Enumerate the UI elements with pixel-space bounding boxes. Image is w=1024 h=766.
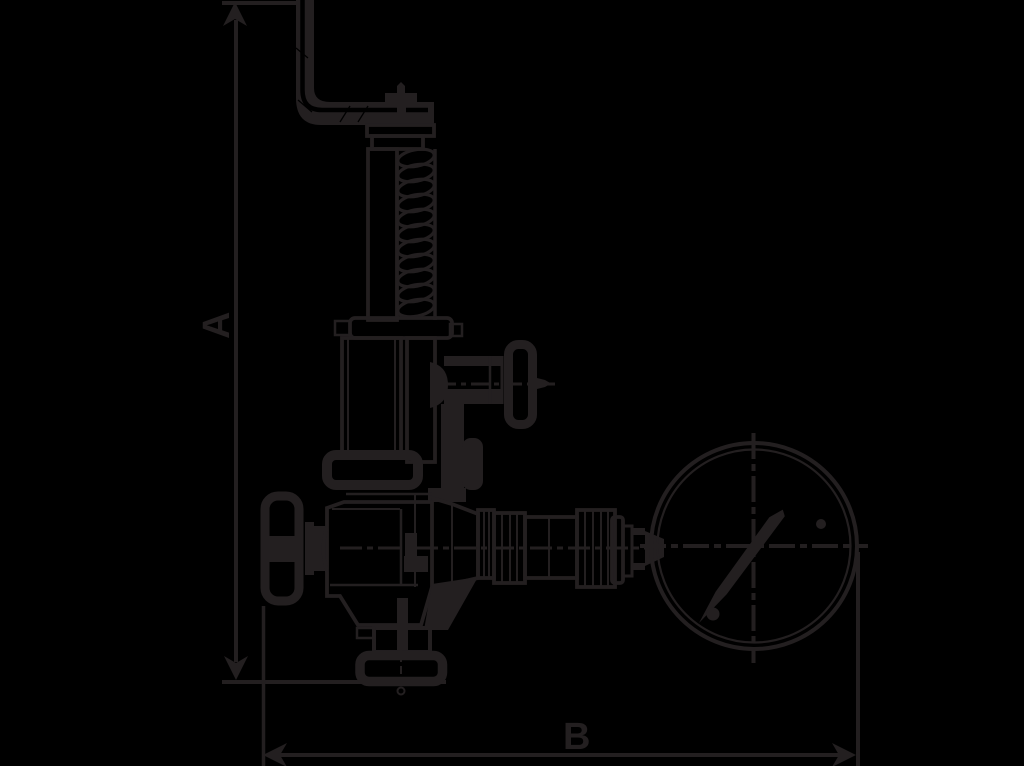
- svg-text:A: A: [196, 312, 238, 339]
- svg-text:B: B: [563, 716, 590, 758]
